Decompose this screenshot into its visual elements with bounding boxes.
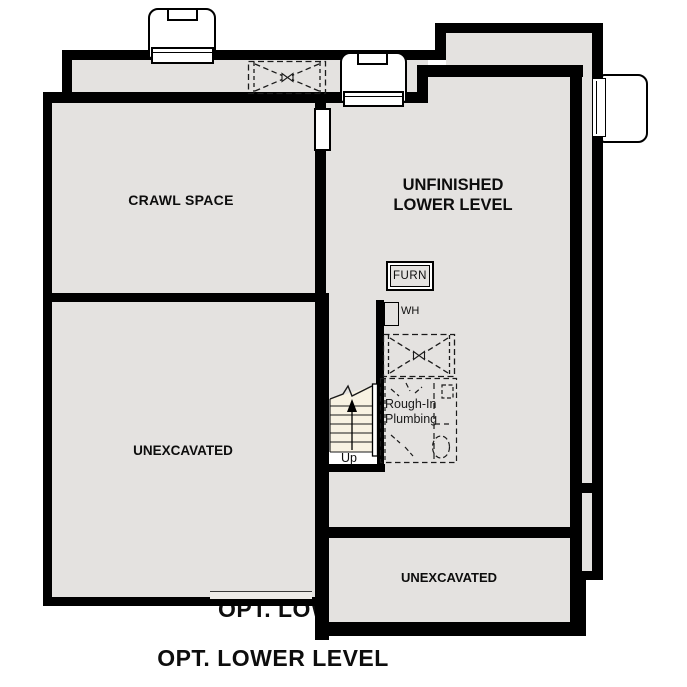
rough-in-label-line2: Plumbing (385, 412, 437, 426)
rough-in-label-line1: Rough-In (385, 397, 436, 411)
window-right-icon (592, 78, 606, 137)
wall-unfinished-bottom (329, 527, 576, 538)
unfinished-lower-level-label-line2: LOWER LEVEL (393, 195, 512, 215)
stairs-up-label: Up (341, 451, 357, 465)
stair-stringer-icon (373, 384, 378, 456)
bottom-wall-window-band-icon (210, 591, 312, 599)
wall-crawl-unexcavated-divider (43, 293, 326, 302)
wall-top-right-outer-step (435, 23, 446, 60)
window-well-top-center-notch-icon (357, 52, 388, 65)
crawl-space-label: CRAWL SPACE (128, 192, 233, 208)
window-top-center-icon (343, 91, 404, 107)
floor-plan: OPT. LOWER LEVEL (0, 0, 687, 687)
wall-top-right-inner (417, 65, 583, 77)
window-well-top-left-notch-icon (167, 8, 198, 21)
wall-right-inner (570, 77, 582, 622)
hatch-box-middle-icon (382, 333, 456, 378)
window-middle-divider-icon (314, 108, 331, 151)
water-heater-box (384, 302, 399, 326)
wall-stair-left-column (315, 293, 329, 640)
wall-extension-bottom (317, 622, 586, 636)
toilet-rough-in-icon (433, 436, 450, 458)
window-top-left-icon (151, 47, 214, 64)
wall-extension-right (574, 571, 586, 636)
furnace-box: FURN (386, 261, 434, 291)
unfinished-lower-level-label: UNFINISHED LOWER LEVEL (393, 175, 512, 215)
furnace-label: FURN (390, 265, 430, 287)
wall-stair-bottom (329, 464, 385, 472)
hatch-box-top-icon (247, 60, 327, 95)
water-heater-label: WH (401, 305, 419, 317)
wall-top-right-outer (435, 23, 601, 33)
unfinished-lower-level-label-line1: UNFINISHED (393, 175, 512, 195)
window-well-right-icon (601, 74, 648, 143)
wall-left-outer (43, 92, 52, 606)
sink-rough-in-icon (442, 385, 453, 398)
plan-title: OPT. LOWER LEVEL (157, 645, 389, 672)
unexcavated-right-label: UNEXCAVATED (401, 570, 497, 585)
unexcavated-left-label: UNEXCAVATED (133, 443, 233, 458)
